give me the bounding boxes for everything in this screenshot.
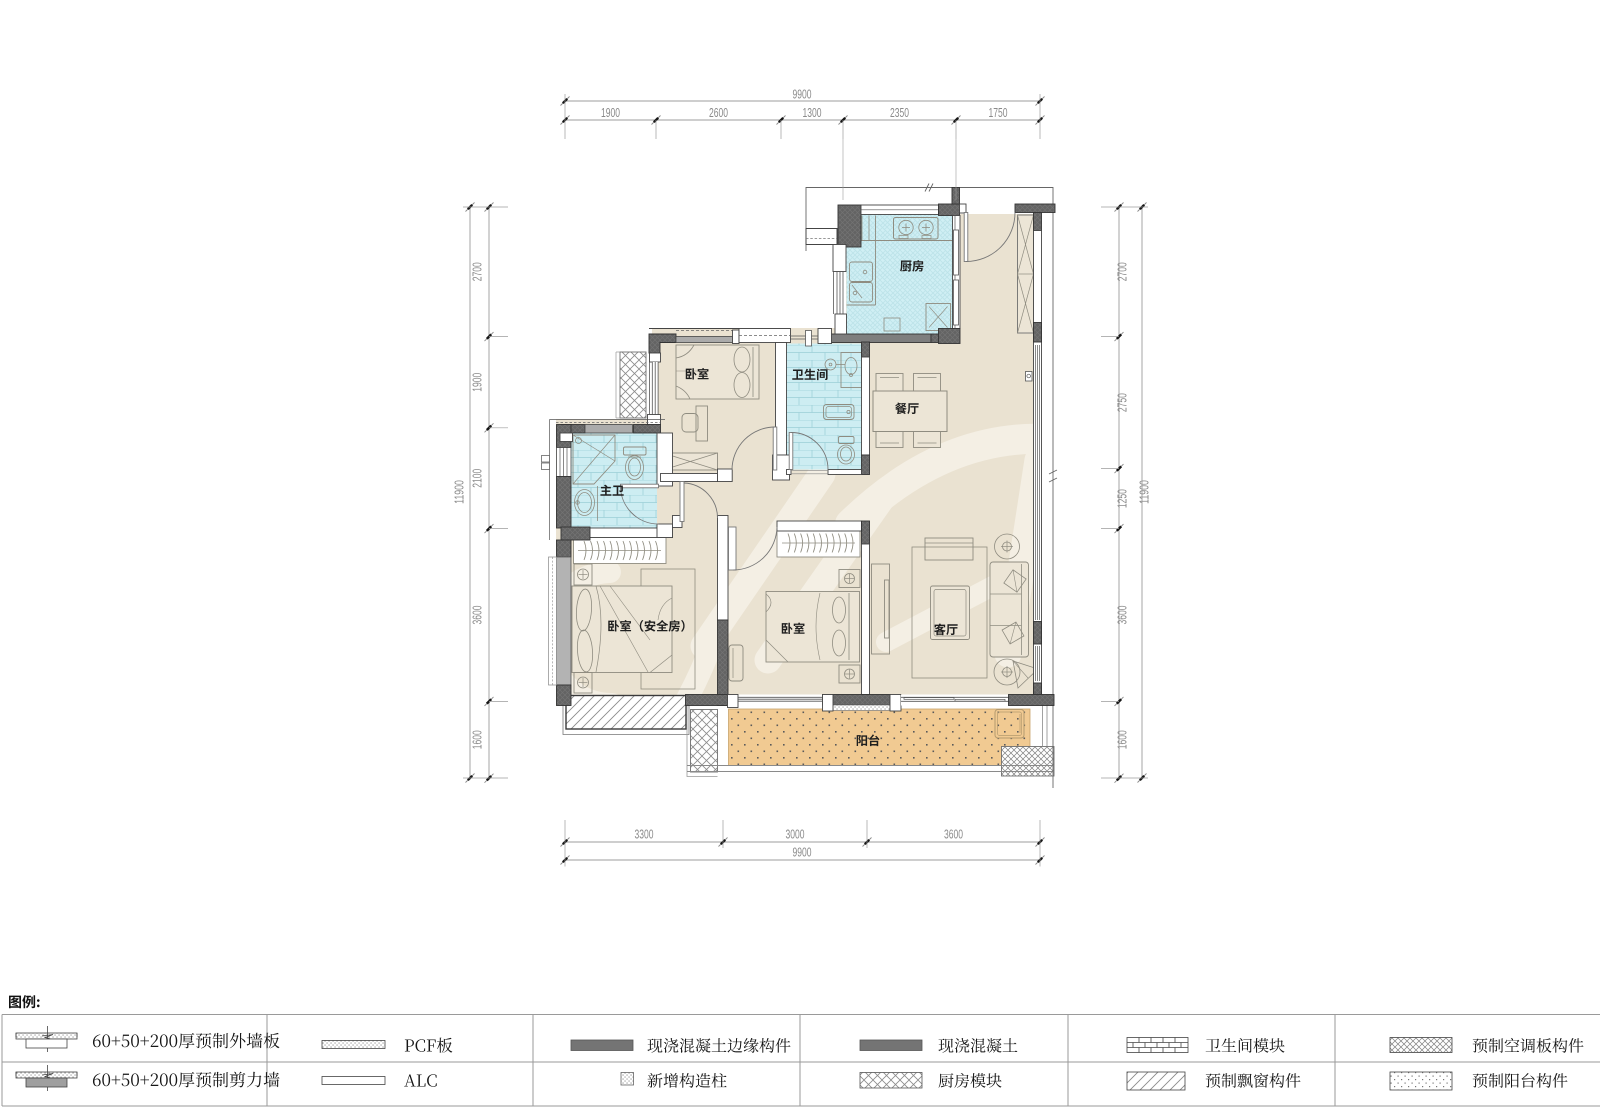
svg-text:11900: 11900 [452,480,467,504]
svg-text:3600: 3600 [470,606,485,625]
svg-text:2700: 2700 [1115,262,1130,281]
svg-text:2700: 2700 [470,262,485,281]
svg-text:1750: 1750 [989,105,1008,120]
svg-text:3600: 3600 [944,827,963,842]
svg-text:1900: 1900 [601,105,620,120]
svg-text:1600: 1600 [1115,730,1130,749]
svg-text:1900: 1900 [470,373,485,392]
svg-text:1300: 1300 [803,105,822,120]
svg-text:3000: 3000 [786,827,805,842]
svg-text:1250: 1250 [1115,489,1130,508]
svg-text:9900: 9900 [793,87,812,102]
svg-text:9900: 9900 [793,845,812,860]
svg-text:2750: 2750 [1115,393,1130,412]
svg-text:2600: 2600 [709,105,728,120]
svg-text:1600: 1600 [470,730,485,749]
svg-text:2350: 2350 [890,105,909,120]
svg-text:2100: 2100 [470,469,485,488]
svg-text:11900: 11900 [1137,480,1152,504]
svg-text:3300: 3300 [635,827,654,842]
svg-text:3600: 3600 [1115,606,1130,625]
